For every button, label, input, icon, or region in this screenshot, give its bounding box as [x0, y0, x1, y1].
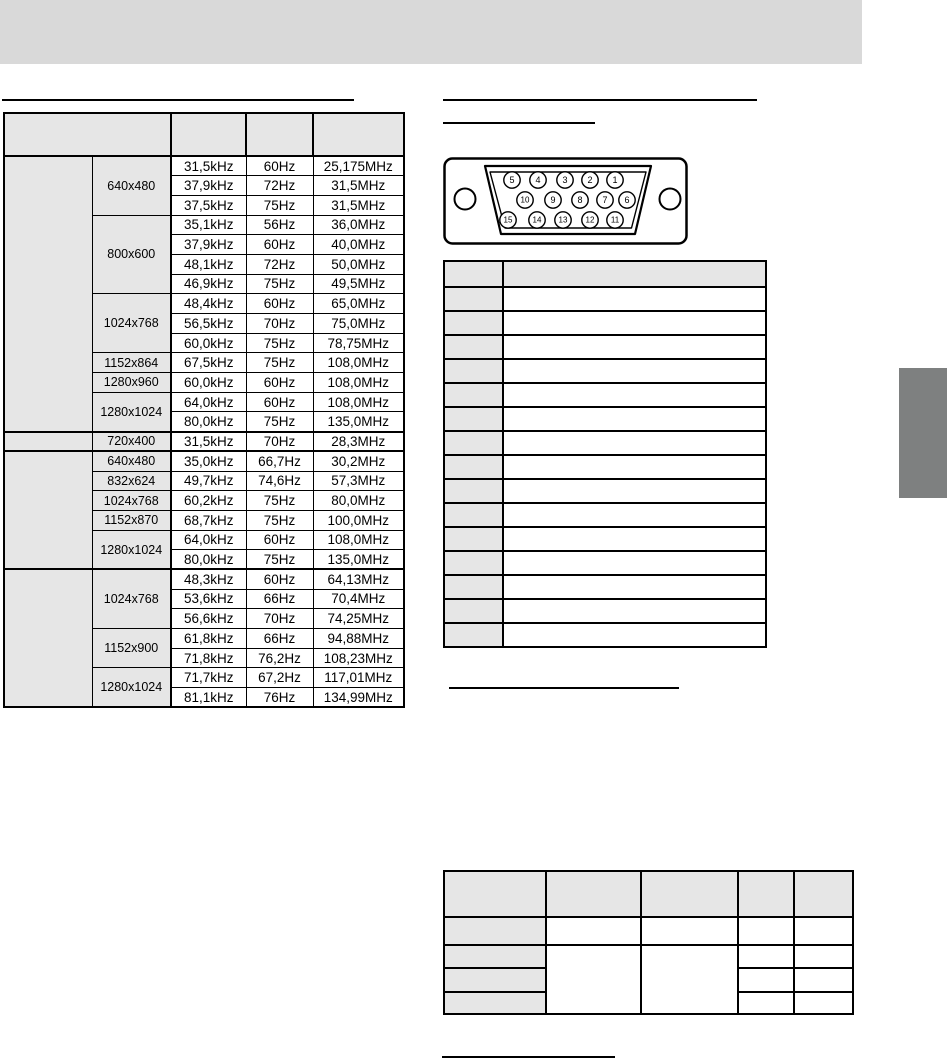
- pin-number-label: 5: [509, 175, 514, 185]
- pixclock-cell: 70,4MHz: [313, 589, 404, 609]
- signal-header-0: [444, 871, 546, 917]
- resolution-cell: 1024x768: [92, 569, 171, 628]
- resolution-cell: 1152x864: [92, 353, 171, 373]
- pixclock-cell: 49,5MHz: [313, 274, 404, 294]
- pin-row: [444, 383, 766, 407]
- resolution-cell: 1024x768: [92, 491, 171, 511]
- pin-number-label: 2: [587, 175, 592, 185]
- pixclock-cell: 108,23MHz: [313, 648, 404, 668]
- pin-signal-cell: [503, 503, 766, 527]
- timing-modes-table: 640x48031,5kHz60Hz25,175MHz37,9kHz72Hz31…: [3, 112, 405, 708]
- vfreq-cell: 60Hz: [246, 392, 313, 412]
- vfreq-cell: 60Hz: [246, 569, 313, 589]
- signal-label-cell: [444, 968, 546, 992]
- hfreq-cell: 61,8kHz: [171, 629, 246, 649]
- signal-cell: [738, 992, 794, 1014]
- vfreq-cell: 60Hz: [246, 156, 313, 176]
- hfreq-cell: 71,8kHz: [171, 648, 246, 668]
- signal-header-4: [794, 871, 853, 917]
- resolution-cell: 1280x1024: [92, 668, 171, 707]
- pin-number-label: 8: [577, 195, 582, 205]
- hfreq-cell: 35,0kHz: [171, 451, 246, 471]
- resolution-cell: 1152x870: [92, 510, 171, 530]
- hfreq-cell: 80,0kHz: [171, 550, 246, 570]
- hfreq-cell: 60,2kHz: [171, 491, 246, 511]
- pin-number-label: 6: [624, 195, 629, 205]
- pin-header-number: [444, 261, 503, 287]
- hfreq-cell: 48,1kHz: [171, 254, 246, 274]
- hfreq-cell: 64,0kHz: [171, 392, 246, 412]
- signal-cell: [794, 992, 853, 1014]
- hfreq-cell: 56,5kHz: [171, 314, 246, 334]
- pin-number-cell: [444, 359, 503, 383]
- pin-row: [444, 431, 766, 455]
- hfreq-cell: 31,5kHz: [171, 432, 246, 452]
- pin-signal-cell: [503, 527, 766, 551]
- pixclock-cell: 31,5MHz: [313, 195, 404, 215]
- pin-number-label: 4: [535, 175, 540, 185]
- vfreq-cell: 75Hz: [246, 491, 313, 511]
- pin-number-cell: [444, 503, 503, 527]
- vfreq-cell: 75Hz: [246, 333, 313, 353]
- pixclock-cell: 80,0MHz: [313, 491, 404, 511]
- pixclock-cell: 57,3MHz: [313, 471, 404, 491]
- vfreq-cell: 72Hz: [246, 254, 313, 274]
- page-header-banner: [0, 0, 862, 64]
- connector-heading-underline: [443, 99, 757, 101]
- signal-label-cell: [444, 945, 546, 968]
- signal-cell: [794, 917, 853, 945]
- pin-number-cell: [444, 455, 503, 479]
- hfreq-cell: 53,6kHz: [171, 589, 246, 609]
- pin-number-label: 12: [586, 216, 595, 225]
- pin-signal-cell: [503, 359, 766, 383]
- pixclock-cell: 108,0MHz: [313, 353, 404, 373]
- pin-signal-cell: [503, 431, 766, 455]
- timing-heading-underline: [2, 99, 354, 101]
- pixclock-cell: 75,0MHz: [313, 314, 404, 334]
- pin-signal-cell: [503, 575, 766, 599]
- pin-row: [444, 287, 766, 311]
- signal-header-3: [738, 871, 794, 917]
- pin-row: [444, 503, 766, 527]
- hfreq-cell: 64,0kHz: [171, 530, 246, 550]
- pin-number-label: 14: [533, 216, 542, 225]
- pixclock-cell: 36,0MHz: [313, 215, 404, 235]
- timing-header-mode: [4, 113, 171, 156]
- pin-row: [444, 599, 766, 623]
- pin-signal-cell: [503, 407, 766, 431]
- vfreq-cell: 66Hz: [246, 589, 313, 609]
- pin-row: [444, 623, 766, 647]
- vfreq-cell: 72Hz: [246, 176, 313, 196]
- signal-cell: [794, 945, 853, 968]
- signal-cell: [738, 917, 794, 945]
- pin-signal-cell: [503, 599, 766, 623]
- vfreq-cell: 60Hz: [246, 530, 313, 550]
- pixclock-cell: 28,3MHz: [313, 432, 404, 452]
- pixclock-cell: 108,0MHz: [313, 392, 404, 412]
- pin-number-cell: [444, 407, 503, 431]
- pin-row: [444, 455, 766, 479]
- resolution-cell: 1280x1024: [92, 530, 171, 569]
- timing-row: 640x48031,5kHz60Hz25,175MHz: [4, 156, 404, 176]
- timing-row: 720x40031,5kHz70Hz28,3MHz: [4, 432, 404, 452]
- hfreq-cell: 71,7kHz: [171, 668, 246, 688]
- pixclock-cell: 117,01MHz: [313, 668, 404, 688]
- vfreq-cell: 75Hz: [246, 510, 313, 530]
- pixclock-cell: 50,0MHz: [313, 254, 404, 274]
- pin-number-cell: [444, 551, 503, 575]
- hfreq-cell: 60,0kHz: [171, 333, 246, 353]
- pixclock-cell: 134,99MHz: [313, 688, 404, 708]
- pixclock-cell: 25,175MHz: [313, 156, 404, 176]
- platform-group-cell: [4, 156, 92, 432]
- hfreq-cell: 60,0kHz: [171, 373, 246, 393]
- section-edge-tab: [899, 368, 947, 498]
- timing-header-clock: [313, 113, 404, 156]
- signal-row: [444, 945, 853, 968]
- pin-signal-cell: [503, 551, 766, 575]
- manual-page: 640x48031,5kHz60Hz25,175MHz37,9kHz72Hz31…: [0, 0, 947, 1060]
- signal-header-2: [641, 871, 738, 917]
- pin-number-label: 7: [602, 195, 607, 205]
- mounting-hole-left: [455, 189, 476, 210]
- resolution-cell: 1152x900: [92, 629, 171, 668]
- pin-number-cell: [444, 623, 503, 647]
- signal-cell: [546, 917, 641, 945]
- vfreq-cell: 76Hz: [246, 688, 313, 708]
- vfreq-cell: 70Hz: [246, 432, 313, 452]
- signal-label-cell: [444, 992, 546, 1014]
- pin-header-signal: [503, 261, 766, 287]
- signal-row: [444, 917, 853, 945]
- vga-connector-diagram: 543211098761514131211: [443, 157, 688, 245]
- pin-row: [444, 551, 766, 575]
- pin-signal-cell: [503, 479, 766, 503]
- signal-cell: [738, 968, 794, 992]
- pin-signal-cell: [503, 311, 766, 335]
- pin-number-cell: [444, 575, 503, 599]
- platform-group-cell: [4, 451, 92, 569]
- signal-label-cell: [444, 917, 546, 945]
- vfreq-cell: 75Hz: [246, 550, 313, 570]
- pixclock-cell: 74,25MHz: [313, 609, 404, 629]
- signal-merged-cell: [546, 945, 641, 1014]
- pixclock-cell: 135,0MHz: [313, 550, 404, 570]
- pixclock-cell: 108,0MHz: [313, 530, 404, 550]
- vfreq-cell: 60Hz: [246, 235, 313, 255]
- signal-cell: [641, 917, 738, 945]
- mounting-hole-right: [660, 189, 681, 210]
- pin-number-cell: [444, 479, 503, 503]
- vfreq-cell: 60Hz: [246, 373, 313, 393]
- platform-group-cell: [4, 432, 92, 452]
- signal-cell: [738, 945, 794, 968]
- pin-row: [444, 407, 766, 431]
- timing-row: 1024x76848,3kHz60Hz64,13MHz: [4, 569, 404, 589]
- vfreq-cell: 67,2Hz: [246, 668, 313, 688]
- hfreq-cell: 37,9kHz: [171, 176, 246, 196]
- pin-number-cell: [444, 599, 503, 623]
- vfreq-cell: 75Hz: [246, 353, 313, 373]
- signal-merged-cell: [641, 945, 738, 1014]
- pin-number-label: 11: [611, 216, 620, 225]
- pin-signal-cell: [503, 623, 766, 647]
- hfreq-cell: 49,7kHz: [171, 471, 246, 491]
- pin-number-label: 3: [562, 175, 567, 185]
- timing-header-row: [4, 113, 404, 156]
- pin-number-label: 10: [521, 196, 530, 205]
- timing-header-hfreq: [171, 113, 246, 156]
- signal-cell: [794, 968, 853, 992]
- pin-number-cell: [444, 311, 503, 335]
- pin-number-label: 1: [612, 175, 617, 185]
- vfreq-cell: 70Hz: [246, 609, 313, 629]
- hfreq-cell: 67,5kHz: [171, 353, 246, 373]
- hfreq-cell: 56,6kHz: [171, 609, 246, 629]
- pin-row: [444, 575, 766, 599]
- resolution-cell: 640x480: [92, 156, 171, 215]
- resolution-cell: 832x624: [92, 471, 171, 491]
- pin-signal-cell: [503, 287, 766, 311]
- hfreq-cell: 80,0kHz: [171, 412, 246, 432]
- bottom-heading-underline: [442, 1056, 615, 1058]
- signal-table: [443, 870, 854, 1015]
- pin-number-cell: [444, 383, 503, 407]
- hfreq-cell: 37,5kHz: [171, 195, 246, 215]
- hfreq-cell: 81,1kHz: [171, 688, 246, 708]
- vfreq-cell: 70Hz: [246, 314, 313, 334]
- connector-subheading-underline: [443, 122, 595, 124]
- timing-row: 640x48035,0kHz66,7Hz30,2MHz: [4, 451, 404, 471]
- pin-signal-cell: [503, 383, 766, 407]
- vfreq-cell: 75Hz: [246, 195, 313, 215]
- signal-header-1: [546, 871, 641, 917]
- vfreq-cell: 76,2Hz: [246, 648, 313, 668]
- pin-header-row: [444, 261, 766, 287]
- pixclock-cell: 31,5MHz: [313, 176, 404, 196]
- vfreq-cell: 75Hz: [246, 274, 313, 294]
- resolution-cell: 720x400: [92, 432, 171, 452]
- pin-row: [444, 479, 766, 503]
- pixclock-cell: 100,0MHz: [313, 510, 404, 530]
- pin-number-label: 9: [550, 195, 555, 205]
- pin-row: [444, 335, 766, 359]
- platform-group-cell: [4, 569, 92, 707]
- hfreq-cell: 48,4kHz: [171, 294, 246, 314]
- pixclock-cell: 64,13MHz: [313, 569, 404, 589]
- vfreq-cell: 66,7Hz: [246, 451, 313, 471]
- pin-number-label: 15: [504, 216, 513, 225]
- vfreq-cell: 60Hz: [246, 294, 313, 314]
- pin-row: [444, 359, 766, 383]
- mid-heading-underline: [449, 687, 679, 689]
- pin-number-cell: [444, 527, 503, 551]
- pixclock-cell: 40,0MHz: [313, 235, 404, 255]
- hfreq-cell: 35,1kHz: [171, 215, 246, 235]
- hfreq-cell: 48,3kHz: [171, 569, 246, 589]
- pin-assignment-table: [443, 260, 767, 648]
- resolution-cell: 1280x1024: [92, 392, 171, 431]
- resolution-cell: 800x600: [92, 215, 171, 294]
- resolution-cell: 1024x768: [92, 294, 171, 353]
- resolution-cell: 1280x960: [92, 373, 171, 393]
- pixclock-cell: 108,0MHz: [313, 373, 404, 393]
- vfreq-cell: 74,6Hz: [246, 471, 313, 491]
- pixclock-cell: 94,88MHz: [313, 629, 404, 649]
- pixclock-cell: 65,0MHz: [313, 294, 404, 314]
- pin-row: [444, 527, 766, 551]
- hfreq-cell: 68,7kHz: [171, 510, 246, 530]
- hfreq-cell: 31,5kHz: [171, 156, 246, 176]
- vfreq-cell: 75Hz: [246, 412, 313, 432]
- hfreq-cell: 46,9kHz: [171, 274, 246, 294]
- pin-signal-cell: [503, 455, 766, 479]
- pin-number-label: 13: [559, 216, 568, 225]
- timing-header-vfreq: [246, 113, 313, 156]
- hfreq-cell: 37,9kHz: [171, 235, 246, 255]
- pin-number-cell: [444, 431, 503, 455]
- signal-header-row: [444, 871, 853, 917]
- pixclock-cell: 78,75MHz: [313, 333, 404, 353]
- pin-signal-cell: [503, 335, 766, 359]
- vfreq-cell: 66Hz: [246, 629, 313, 649]
- pixclock-cell: 30,2MHz: [313, 451, 404, 471]
- pin-number-cell: [444, 287, 503, 311]
- pixclock-cell: 135,0MHz: [313, 412, 404, 432]
- pin-number-cell: [444, 335, 503, 359]
- vfreq-cell: 56Hz: [246, 215, 313, 235]
- pin-row: [444, 311, 766, 335]
- resolution-cell: 640x480: [92, 451, 171, 471]
